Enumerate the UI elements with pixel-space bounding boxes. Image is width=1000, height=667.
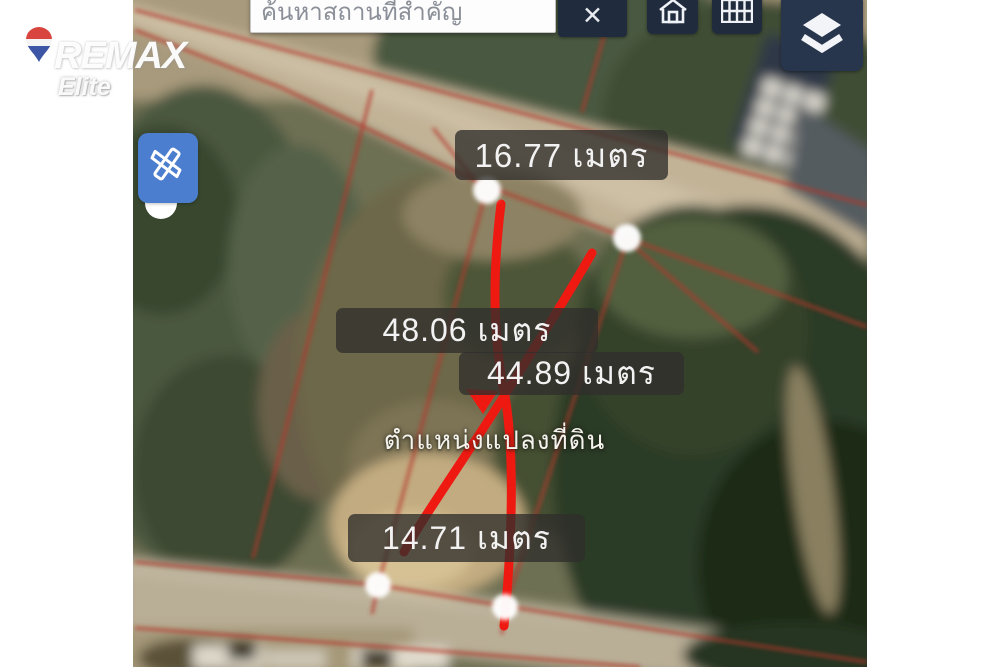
layers-icon	[799, 9, 845, 62]
grid-button[interactable]	[712, 0, 762, 34]
vertex-marker-bottom-left[interactable]	[365, 572, 391, 598]
search-clear-button[interactable]: ✕	[558, 0, 627, 37]
plot-position-label: ตำแหน่งแปลงที่ดิน	[372, 420, 617, 461]
close-icon: ✕	[582, 1, 603, 31]
measure-label-top: 16.77 เมตร	[455, 130, 668, 180]
map-viewport[interactable]: 16.77 เมตร 48.06 เมตร 44.89 เมตร 14.71 เ…	[133, 0, 867, 667]
pencil-ruler-icon	[148, 146, 188, 191]
screenshot-root: 16.77 เมตร 48.06 เมตร 44.89 เมตร 14.71 เ…	[0, 0, 1000, 667]
vertex-marker-right[interactable]	[613, 224, 641, 252]
measure-label-bottom: 14.71 เมตร	[348, 514, 585, 562]
home-button[interactable]	[647, 0, 698, 34]
brand-subtitle: Elite	[58, 73, 111, 102]
search-box	[250, 0, 556, 33]
brand-name: REMAX	[54, 35, 186, 78]
search-input[interactable]	[251, 0, 555, 32]
measure-label-right: 44.89 เมตร	[459, 352, 684, 395]
layers-button[interactable]	[781, 0, 863, 71]
brand-watermark: REMAX Elite	[26, 27, 52, 68]
vertex-marker-bottom-right[interactable]	[492, 594, 518, 620]
home-icon	[658, 0, 688, 29]
grid-icon	[721, 0, 753, 28]
measure-label-left: 48.06 เมตร	[336, 308, 598, 353]
remax-balloon-icon	[26, 50, 52, 67]
draw-tools-button[interactable]	[138, 133, 198, 203]
